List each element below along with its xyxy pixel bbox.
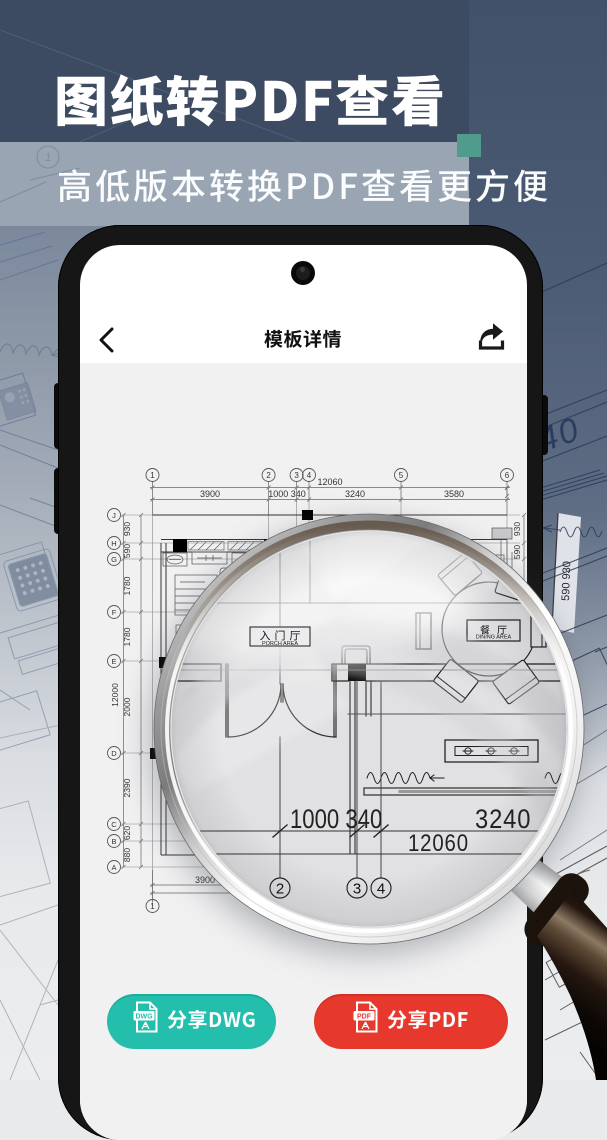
svg-text:H: H bbox=[111, 539, 116, 548]
svg-text:PDF: PDF bbox=[357, 1014, 372, 1021]
svg-text:5: 5 bbox=[399, 471, 404, 480]
svg-text:DWG: DWG bbox=[135, 1014, 153, 1021]
svg-text:F: F bbox=[112, 608, 117, 617]
svg-text:6: 6 bbox=[505, 471, 510, 480]
svg-text:G: G bbox=[111, 555, 117, 564]
svg-text:B: B bbox=[111, 837, 116, 846]
svg-text:590: 590 bbox=[122, 544, 132, 558]
svg-text:4: 4 bbox=[307, 471, 312, 480]
svg-text:3240: 3240 bbox=[345, 489, 365, 499]
svg-text:620: 620 bbox=[122, 826, 132, 840]
svg-text:D: D bbox=[111, 749, 117, 758]
svg-text:1780: 1780 bbox=[122, 576, 132, 595]
svg-text:12060: 12060 bbox=[317, 477, 342, 487]
svg-text:J: J bbox=[112, 511, 116, 520]
svg-text:1: 1 bbox=[150, 471, 155, 480]
svg-text:A: A bbox=[111, 863, 116, 872]
svg-text:12000: 12000 bbox=[110, 683, 120, 707]
svg-text:1780: 1780 bbox=[122, 627, 132, 646]
svg-text:C: C bbox=[111, 820, 117, 829]
svg-text:930: 930 bbox=[122, 522, 132, 536]
svg-text:2390: 2390 bbox=[122, 778, 132, 797]
svg-text:3580: 3580 bbox=[444, 489, 464, 499]
svg-text:880: 880 bbox=[122, 848, 132, 862]
svg-text:1000 340: 1000 340 bbox=[268, 489, 306, 499]
svg-text:2: 2 bbox=[266, 471, 271, 480]
svg-text:2000: 2000 bbox=[122, 697, 132, 716]
svg-text:E: E bbox=[111, 657, 116, 666]
svg-text:3900: 3900 bbox=[200, 489, 220, 499]
svg-text:3: 3 bbox=[294, 471, 299, 480]
